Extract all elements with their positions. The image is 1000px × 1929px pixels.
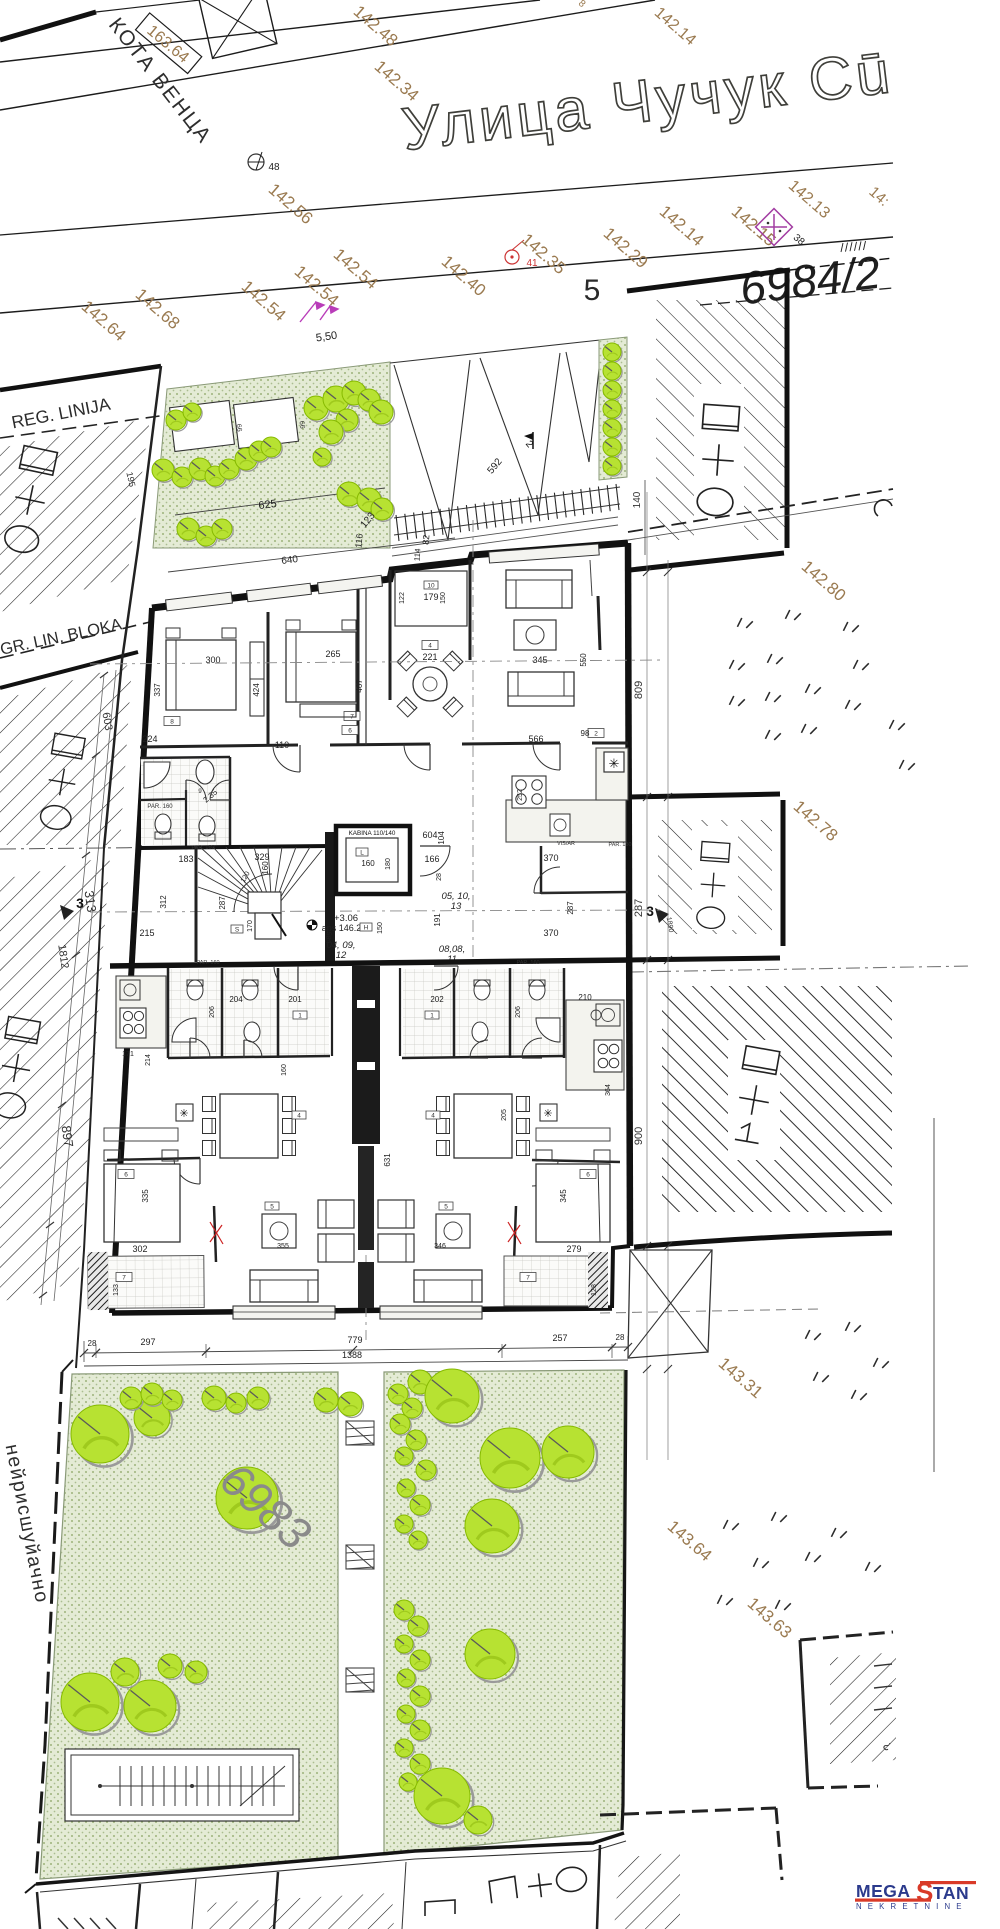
svg-text:900: 900 bbox=[633, 1127, 645, 1145]
svg-text:✳: ✳ bbox=[543, 1108, 552, 1120]
svg-text:28: 28 bbox=[436, 873, 443, 881]
svg-text:28: 28 bbox=[88, 1339, 97, 1348]
svg-text:N E K R E T N I N E: N E K R E T N I N E bbox=[856, 1902, 963, 1911]
svg-text:116: 116 bbox=[353, 533, 364, 548]
svg-text:122: 122 bbox=[399, 592, 406, 604]
svg-text:28: 28 bbox=[616, 1333, 625, 1342]
svg-text:297: 297 bbox=[140, 1337, 155, 1347]
svg-text:287: 287 bbox=[566, 901, 575, 915]
svg-text:180: 180 bbox=[385, 858, 392, 870]
svg-text:PAR. 160: PAR. 160 bbox=[608, 842, 631, 848]
svg-text:202: 202 bbox=[430, 995, 444, 1004]
svg-text:204: 204 bbox=[229, 995, 243, 1004]
svg-text:4: 4 bbox=[428, 643, 432, 650]
svg-text:6: 6 bbox=[124, 1172, 128, 1179]
svg-text:S: S bbox=[235, 927, 240, 934]
svg-text:12: 12 bbox=[336, 950, 347, 961]
svg-text:6: 6 bbox=[586, 1172, 590, 1179]
svg-text:150: 150 bbox=[377, 922, 384, 934]
svg-text:✳: ✳ bbox=[609, 756, 620, 771]
svg-text:205: 205 bbox=[501, 1109, 508, 1121]
svg-text:aps 146.21: aps 146.21 bbox=[322, 923, 367, 933]
svg-text:424: 424 bbox=[252, 683, 261, 697]
svg-text:TAN: TAN bbox=[933, 1883, 969, 1903]
svg-text:345: 345 bbox=[532, 655, 547, 665]
svg-text:897: 897 bbox=[59, 1125, 77, 1149]
svg-text:265: 265 bbox=[325, 649, 340, 659]
svg-text:PAR. 160: PAR. 160 bbox=[516, 960, 539, 966]
svg-text:201: 201 bbox=[288, 995, 302, 1004]
svg-text:370: 370 bbox=[543, 853, 558, 863]
svg-text:625: 625 bbox=[258, 498, 278, 512]
svg-text:133: 133 bbox=[113, 1284, 120, 1296]
svg-text:1: 1 bbox=[298, 1013, 302, 1020]
svg-text:302: 302 bbox=[132, 1244, 147, 1254]
svg-text:206: 206 bbox=[209, 1006, 216, 1018]
svg-text:MEGA: MEGA bbox=[856, 1881, 911, 1901]
svg-text:4: 4 bbox=[297, 1113, 301, 1120]
svg-text:7: 7 bbox=[122, 1275, 126, 1282]
svg-text:98: 98 bbox=[581, 729, 590, 738]
svg-text:3: 3 bbox=[76, 895, 84, 911]
svg-text:L: L bbox=[360, 850, 364, 857]
svg-text:364: 364 bbox=[605, 1084, 612, 1096]
svg-text:VIS/AR: VIS/AR bbox=[557, 841, 575, 847]
svg-text:5: 5 bbox=[270, 1204, 274, 1211]
svg-text:329: 329 bbox=[254, 852, 269, 862]
svg-text:PAR. 160: PAR. 160 bbox=[196, 960, 219, 966]
svg-text:66: 66 bbox=[235, 424, 243, 433]
svg-text:PAR. 160: PAR. 160 bbox=[147, 804, 173, 810]
svg-text:2: 2 bbox=[594, 731, 598, 738]
svg-text:48: 48 bbox=[268, 162, 280, 173]
svg-text:631: 631 bbox=[383, 1153, 392, 1167]
svg-text:345: 345 bbox=[559, 1189, 568, 1203]
svg-text:✳: ✳ bbox=[179, 1108, 188, 1120]
svg-text:KABINA 110/140: KABINA 110/140 bbox=[349, 830, 396, 837]
svg-text:140: 140 bbox=[632, 491, 643, 508]
svg-text:809: 809 bbox=[633, 681, 645, 699]
svg-text:1: 1 bbox=[430, 1013, 434, 1020]
svg-text:10: 10 bbox=[427, 583, 435, 590]
svg-text:7: 7 bbox=[526, 1275, 530, 1282]
svg-text:215: 215 bbox=[139, 928, 154, 938]
svg-text:114: 114 bbox=[412, 547, 422, 561]
svg-text:221: 221 bbox=[422, 652, 437, 662]
svg-text:337: 337 bbox=[153, 683, 162, 697]
svg-text:206: 206 bbox=[515, 1006, 522, 1018]
svg-text:346: 346 bbox=[434, 1243, 446, 1250]
svg-text:550: 550 bbox=[579, 653, 588, 667]
svg-text:110: 110 bbox=[275, 740, 289, 750]
svg-text:160: 160 bbox=[361, 859, 375, 868]
svg-text:566: 566 bbox=[528, 734, 543, 744]
svg-text:170: 170 bbox=[247, 920, 254, 932]
svg-text:6: 6 bbox=[348, 728, 352, 735]
svg-text:150: 150 bbox=[440, 592, 447, 604]
svg-text:210: 210 bbox=[578, 993, 592, 1002]
svg-text:252: 252 bbox=[517, 789, 524, 801]
svg-text:370: 370 bbox=[543, 928, 558, 938]
svg-text:214: 214 bbox=[145, 1054, 152, 1066]
svg-text:104: 104 bbox=[437, 831, 446, 845]
svg-text:66: 66 bbox=[298, 421, 306, 430]
svg-text:191: 191 bbox=[433, 913, 442, 927]
svg-text:5: 5 bbox=[444, 1204, 448, 1211]
svg-text:PAR. 160: PAR. 160 bbox=[191, 845, 214, 851]
svg-text:355: 355 bbox=[277, 1243, 289, 1250]
svg-text:224: 224 bbox=[142, 734, 157, 744]
svg-text:335: 335 bbox=[141, 1189, 150, 1203]
svg-text:467: 467 bbox=[355, 679, 364, 693]
svg-text:312: 312 bbox=[159, 895, 168, 909]
svg-text:279: 279 bbox=[566, 1244, 581, 1254]
svg-text:779: 779 bbox=[347, 1335, 362, 1345]
svg-text:13: 13 bbox=[451, 901, 462, 912]
svg-text:5: 5 bbox=[584, 274, 601, 307]
svg-text:640: 640 bbox=[281, 554, 299, 567]
svg-text:287: 287 bbox=[218, 896, 227, 910]
svg-text:183: 183 bbox=[178, 854, 193, 864]
svg-text:8: 8 bbox=[170, 719, 174, 726]
svg-text:287: 287 bbox=[633, 899, 645, 917]
svg-text:H: H bbox=[364, 925, 369, 932]
svg-text:166: 166 bbox=[424, 854, 439, 864]
svg-text:313: 313 bbox=[82, 890, 100, 914]
svg-text:128: 128 bbox=[591, 1284, 598, 1296]
svg-text:171: 171 bbox=[122, 1051, 134, 1058]
svg-text:179: 179 bbox=[423, 592, 438, 602]
svg-text:4: 4 bbox=[431, 1113, 435, 1120]
svg-text:257: 257 bbox=[552, 1333, 567, 1343]
svg-text:160: 160 bbox=[281, 1064, 288, 1076]
svg-text:82: 82 bbox=[421, 534, 432, 545]
svg-text:604: 604 bbox=[422, 830, 437, 840]
